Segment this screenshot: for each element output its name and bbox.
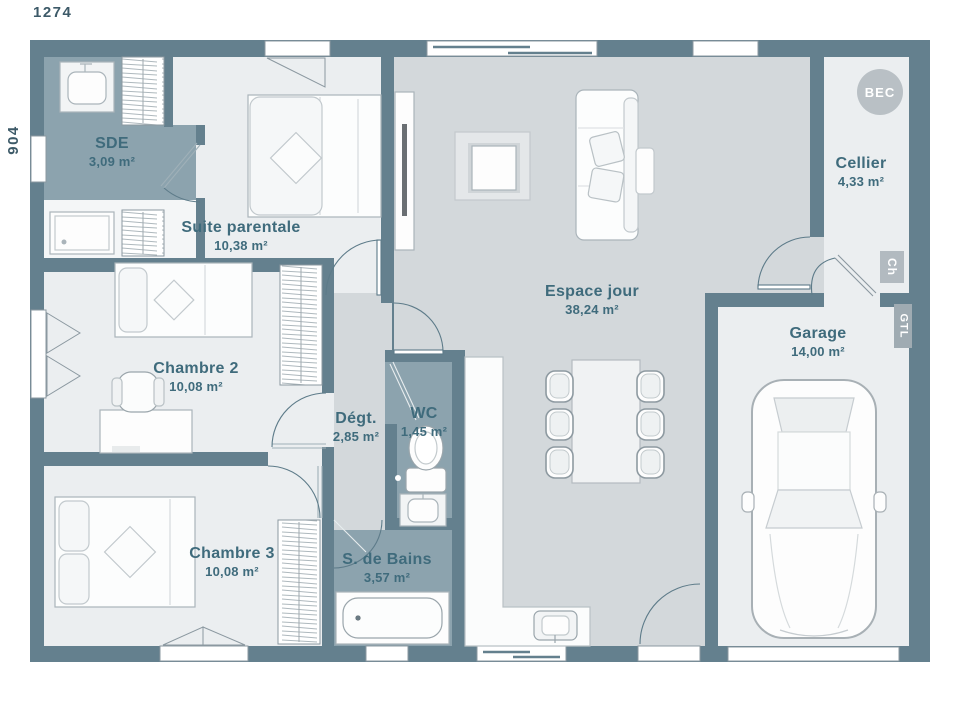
ch-tag: Ch bbox=[880, 251, 904, 283]
room-name: Chambre 3 bbox=[189, 545, 274, 564]
floor-degagement bbox=[334, 293, 392, 518]
room-area: 10,38 m² bbox=[181, 238, 300, 253]
room-name: Dégt. bbox=[333, 410, 379, 429]
closet-chambre-2 bbox=[280, 265, 322, 385]
dimension-height-label: 904 bbox=[5, 118, 25, 162]
room-label-garage: Garage 14,00 m² bbox=[790, 325, 847, 359]
room-label-chambre-3: Chambre 3 10,08 m² bbox=[189, 545, 274, 579]
window-chambre-2 bbox=[31, 310, 46, 398]
ch-label: Ch bbox=[885, 258, 899, 276]
floor-plan: 1274 904 SDE 3,09 m² Suite parentale 10,… bbox=[0, 0, 960, 702]
room-label-chambre-2: Chambre 2 10,08 m² bbox=[153, 360, 238, 394]
room-label-degagement: Dégt. 2,85 m² bbox=[333, 410, 379, 444]
dining-table bbox=[572, 360, 640, 483]
dimension-width-label: 1274 bbox=[33, 4, 72, 21]
room-label-wc: WC 1,45 m² bbox=[401, 405, 447, 439]
washbasin-wc-icon bbox=[400, 494, 446, 526]
room-label-suite-parentale: Suite parentale 10,38 m² bbox=[181, 219, 300, 253]
window-chambre-3 bbox=[160, 646, 248, 661]
car-icon bbox=[742, 380, 886, 638]
gtl-tag: GTL bbox=[894, 304, 912, 348]
gtl-label: GTL bbox=[897, 314, 909, 339]
room-area: 4,33 m² bbox=[835, 174, 886, 189]
window-salle-de-bains bbox=[366, 646, 408, 661]
bec-badge: BEC bbox=[857, 69, 903, 115]
room-name: WC bbox=[401, 405, 447, 424]
room-name: Suite parentale bbox=[181, 219, 300, 238]
bec-label: BEC bbox=[865, 85, 895, 100]
bathtub-icon bbox=[336, 592, 449, 644]
room-area: 10,08 m² bbox=[189, 564, 274, 579]
window-suite bbox=[265, 41, 330, 56]
room-area: 2,85 m² bbox=[333, 429, 379, 444]
room-name: S. de Bains bbox=[342, 551, 432, 570]
room-area: 10,08 m² bbox=[153, 379, 238, 394]
room-label-cellier: Cellier 4,33 m² bbox=[835, 155, 886, 189]
room-name: Garage bbox=[790, 325, 847, 344]
room-name: Chambre 2 bbox=[153, 360, 238, 379]
room-label-salle-de-bains: S. de Bains 3,57 m² bbox=[342, 551, 432, 585]
closet-suite-a bbox=[122, 57, 164, 125]
bed-chambre-3 bbox=[55, 497, 195, 607]
coffee-table bbox=[455, 132, 530, 200]
room-area: 1,45 m² bbox=[401, 424, 447, 439]
room-label-sde: SDE 3,09 m² bbox=[89, 135, 135, 169]
room-label-espace-jour: Espace jour 38,24 m² bbox=[545, 283, 639, 317]
window-espace-jour bbox=[693, 41, 758, 56]
room-name: Cellier bbox=[835, 155, 886, 174]
washbasin-sde-icon bbox=[60, 62, 114, 112]
closet-chambre-3 bbox=[278, 520, 320, 644]
room-area: 3,09 m² bbox=[89, 154, 135, 169]
entrance-door-frame bbox=[638, 646, 700, 661]
window-sde bbox=[31, 136, 46, 182]
room-area: 38,24 m² bbox=[545, 302, 639, 317]
garage-door bbox=[728, 647, 899, 661]
tv-unit bbox=[395, 92, 414, 250]
bed-suite-parentale bbox=[248, 95, 381, 217]
room-name: SDE bbox=[89, 135, 135, 154]
bed-chambre-2 bbox=[115, 263, 252, 337]
room-name: Espace jour bbox=[545, 283, 639, 302]
closet-suite-b bbox=[122, 210, 164, 256]
room-area: 14,00 m² bbox=[790, 344, 847, 359]
window-kitchen bbox=[477, 646, 566, 661]
room-area: 3,57 m² bbox=[342, 570, 432, 585]
shower-icon bbox=[50, 212, 114, 254]
